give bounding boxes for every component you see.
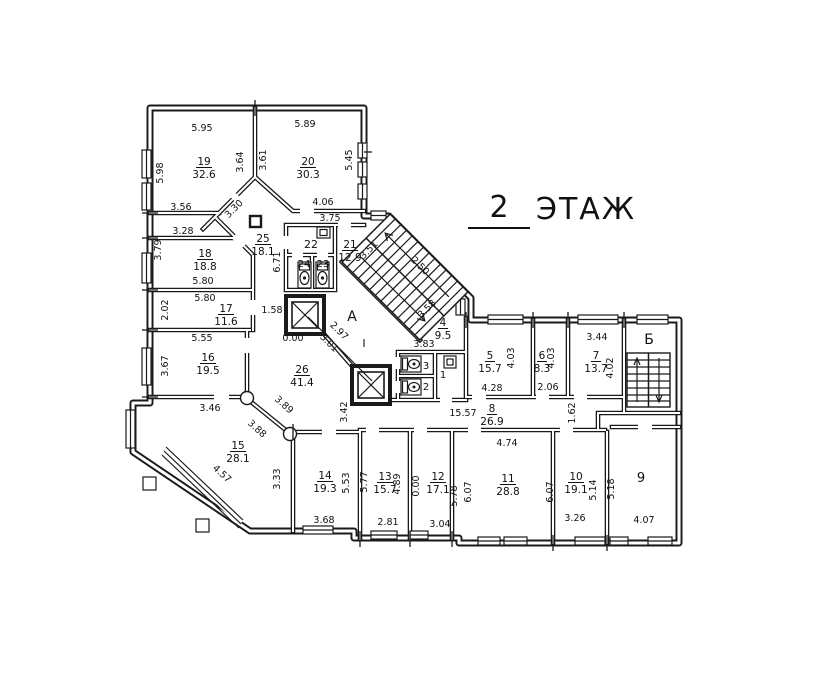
dimension-value: 15.57 <box>449 408 476 419</box>
dimension-value: 5.80 <box>192 276 213 287</box>
dimension-value: 3.28 <box>172 226 193 237</box>
floor-plan-page: 1932.62030.32518.12112.91818.81711.61619… <box>0 0 833 682</box>
floor-word: ЭТАЖ <box>536 192 636 229</box>
toilet-icon <box>401 379 421 395</box>
room-number: 23 <box>317 259 330 270</box>
dimension-value: 3.44 <box>586 332 607 343</box>
room-number: 2 <box>423 382 429 393</box>
dimension-value: 6.07 <box>463 481 474 502</box>
room-number: 15 <box>231 440 244 452</box>
dimension-value: 5.80 <box>194 293 215 304</box>
dimension-value: 4.89 <box>392 473 403 494</box>
dimension-value: 3.61 <box>258 149 269 170</box>
dimension-value: 3.56 <box>170 202 191 213</box>
room-area: 28.8 <box>496 486 519 498</box>
floor-title: 2 ЭТАЖ <box>468 190 636 229</box>
stairwell-a <box>342 214 468 340</box>
room-number: 13 <box>378 471 391 483</box>
room-number: 16 <box>201 352 215 364</box>
dimension-value: 4.07 <box>633 515 654 526</box>
dimension-value: 3.79 <box>153 239 164 260</box>
room-number: 12 <box>431 471 444 483</box>
room-number: 21 <box>343 239 356 251</box>
room-number: А <box>347 309 357 325</box>
room-number: 1 <box>440 370 446 381</box>
room-area: 17.1 <box>426 484 449 496</box>
room-number: 25 <box>256 233 269 245</box>
dimension-value: 4.28 <box>481 383 502 394</box>
room-number: 3 <box>423 361 429 372</box>
room-area: 32.6 <box>192 169 216 181</box>
round-column <box>284 428 297 441</box>
room-number: 11 <box>501 473 514 485</box>
room-area: 28.1 <box>226 453 249 465</box>
dimension-value: 5.89 <box>294 119 315 130</box>
dimension-value: 5.18 <box>606 478 617 499</box>
dimension-value: 1.62 <box>567 402 578 423</box>
dimension-value: 6.71 <box>272 251 283 272</box>
dimension-value: 5.98 <box>155 162 166 183</box>
round-column <box>241 392 254 405</box>
dimension-value: 3.42 <box>339 401 350 422</box>
room-area: 19.1 <box>564 484 587 496</box>
dimension-value: 5.95 <box>191 123 212 134</box>
room-area: 19.5 <box>196 365 219 377</box>
dimension-value: 4.03 <box>546 347 557 368</box>
toilet-icon <box>401 356 421 372</box>
room-number: 19 <box>197 156 210 168</box>
dimension-value: 3.26 <box>564 513 585 524</box>
dimension-value: 5.53 <box>341 472 352 493</box>
room-area: 41.4 <box>290 377 314 389</box>
room-number: I <box>362 337 365 350</box>
dimension-value: 5.78 <box>449 485 460 506</box>
room-area: 11.6 <box>214 316 238 328</box>
room-number: 17 <box>219 303 232 315</box>
room-number: 7 <box>593 350 600 362</box>
room-area: 26.9 <box>480 416 503 428</box>
dimension-value: 3.64 <box>235 151 246 172</box>
dimension-value: 2.81 <box>377 517 398 528</box>
dimension-value: 4.03 <box>506 347 517 368</box>
dimension-value: 3.89 <box>272 394 295 416</box>
room-area: 9.5 <box>435 330 452 342</box>
dimension-value: 4.74 <box>496 438 517 449</box>
dimension-value: 3.04 <box>429 519 450 530</box>
room-number: 14 <box>318 470 332 482</box>
dimension-value: 3.75 <box>319 213 340 224</box>
room-area: 19.3 <box>313 483 336 495</box>
dimension-value: 4.06 <box>312 197 333 208</box>
elevator-2 <box>352 366 390 404</box>
square-column <box>250 216 261 227</box>
room-number: 20 <box>301 156 314 168</box>
dimension-value: 3.67 <box>160 355 171 376</box>
room-number: 10 <box>569 471 582 483</box>
stairwell-b <box>627 353 670 407</box>
room-number: 6 <box>539 350 546 362</box>
room-area: 18.8 <box>193 261 216 273</box>
dimension-value: 0.00 <box>411 475 422 496</box>
dimension-value: 3.33 <box>272 468 283 489</box>
floor-number: 2 <box>468 190 530 229</box>
room-area: 15.7 <box>478 363 501 375</box>
dimension-value: 3.88 <box>245 418 268 440</box>
dimension-value: 1.58 <box>261 305 282 316</box>
dimension-value: 2.02 <box>160 299 171 320</box>
sink-icon <box>444 356 456 368</box>
room-number: 8 <box>489 403 496 415</box>
room-number: 22 <box>304 238 318 251</box>
room-number: 9 <box>637 471 645 486</box>
dimension-value: 5.77 <box>359 471 370 492</box>
room-number: 4 <box>440 317 447 329</box>
dimension-value: 0.00 <box>282 333 303 344</box>
dimension-value: 3.83 <box>413 339 434 350</box>
dimension-value: 4.02 <box>605 357 616 378</box>
room-number: 24 <box>298 259 311 270</box>
dimension-value: 3.68 <box>313 515 334 526</box>
room-area: 30.3 <box>296 169 319 181</box>
dimension-value: 3.46 <box>199 403 220 414</box>
bay-pier <box>196 519 209 532</box>
room-number: 5 <box>487 350 494 362</box>
bay-pier <box>143 477 156 490</box>
dimension-value: 5.14 <box>588 479 599 500</box>
dimension-value: 5.55 <box>191 333 212 344</box>
elevator-1 <box>286 296 324 334</box>
room-number: Б <box>644 332 654 348</box>
floor-plan-drawing: 1932.62030.32518.12112.91818.81711.61619… <box>0 0 833 682</box>
dimension-value: 2.06 <box>537 382 558 393</box>
room-number: 18 <box>198 248 211 260</box>
room-number: 26 <box>295 364 309 376</box>
dimension-value: 4.57 <box>210 463 233 485</box>
dimension-value: 5.45 <box>344 149 355 170</box>
dimension-value: 6.07 <box>545 481 556 502</box>
sink-icon <box>317 227 330 238</box>
